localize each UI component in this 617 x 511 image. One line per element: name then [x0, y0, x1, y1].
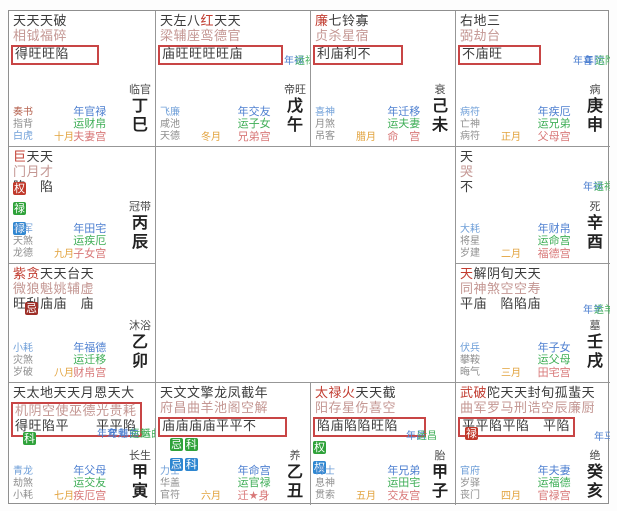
palace-cell-ji-wei[interactable]: 廉七铃寡贞杀星宿利庙利不喜神月煞吊客腊月年迁移运夫妻命 宫衰己未: [311, 11, 456, 147]
highlight-box: 得旺旺陷: [11, 45, 99, 65]
stage-label: 养: [282, 449, 308, 462]
palace-label: 官禄宫: [538, 490, 571, 503]
brightness-row: 不庙旺: [462, 47, 503, 62]
star-char: 天: [40, 150, 54, 165]
star-char: 月: [81, 386, 95, 401]
stage-label: 死: [582, 200, 608, 213]
transform-badge-row: 禄: [13, 197, 31, 217]
transform-badge-row: 禄: [465, 422, 480, 442]
star-char: 三: [487, 14, 501, 29]
star-char: 禄: [329, 386, 343, 401]
star-char: 蜚: [568, 386, 582, 401]
branch-char: 乙: [127, 332, 153, 351]
star-char: 天: [27, 14, 41, 29]
star-char: 右: [460, 14, 474, 29]
star-char: 天: [54, 386, 68, 401]
gods-list: 将军天煞龙德: [13, 224, 33, 260]
branch-char: 巳: [127, 115, 153, 134]
star-char: 太: [315, 386, 329, 401]
god-label: 岁破: [13, 367, 33, 379]
branch-char: 癸: [582, 462, 608, 481]
center-blank-area: [156, 147, 456, 383]
month-label: 腊月: [356, 128, 376, 143]
month-label: 十月: [54, 128, 74, 143]
year-marker: 年鸾: [97, 430, 108, 441]
year-marker: 年喜: [573, 57, 584, 68]
palace-cell-xin-you[interactable]: 天哭不年禄运禄大耗将星岁建二月年财帛运命宫福德宫死辛酉: [456, 147, 610, 264]
brightness-row: 得旺旺陷: [15, 47, 69, 62]
branch-char: 未: [427, 115, 453, 134]
year-marker: 年禄: [284, 57, 295, 68]
month-label: 七月: [54, 487, 74, 502]
star-char: 天: [40, 14, 54, 29]
palace-label: 命 宫: [387, 131, 420, 144]
star-char: 天: [13, 386, 27, 401]
star-char: 地: [474, 14, 488, 29]
palace-cell-bing-chen[interactable]: 巨天天门月才陷 陷权禄禄将军天煞龙德九月年田宅运疾厄子女宫冠带丙辰: [9, 147, 156, 264]
branch-char: 乙: [282, 462, 308, 481]
star-char: 天: [369, 386, 383, 401]
palace-cell-wu-wu[interactable]: 天左八红天天梁辅座鸾德官庙旺旺旺旺庙年禄运禄飞廉咸池天德冬月年交友运子女兄弟宫帝…: [156, 11, 311, 147]
gods-list: 伏兵攀鞍晦气: [460, 343, 480, 379]
gods-list: 青龙劫煞小耗: [13, 466, 33, 502]
transform-badge: 权: [13, 182, 26, 195]
star-names-top: 天左八红天天: [160, 14, 310, 29]
palace-label: 迁★身: [238, 490, 271, 503]
palace-labels: 年父母运交友疾厄宫: [73, 465, 106, 503]
god-label: 息神: [315, 478, 335, 490]
palace-label: 运交友: [73, 477, 106, 490]
branch-char: 酉: [582, 232, 608, 251]
star-char: 左: [174, 14, 188, 29]
star-names-top: 武破陀天天封旬孤蜚天: [460, 386, 610, 401]
year-marker: 年马: [594, 433, 605, 444]
stage-label: 冠带: [127, 200, 153, 213]
star-char: 天: [228, 14, 242, 29]
star-char: 天: [514, 386, 528, 401]
god-label: 病符: [460, 107, 480, 119]
star-char: 八: [187, 14, 201, 29]
star-char: 天: [13, 14, 27, 29]
god-label: 大耗: [460, 224, 480, 236]
branch-char: 卯: [127, 351, 153, 370]
star-char: 天: [160, 14, 174, 29]
palace-label: 田宅宫: [538, 367, 571, 380]
star-char: 旬: [501, 267, 515, 282]
god-label: 白虎: [13, 131, 33, 143]
month-label: 三月: [501, 364, 521, 379]
star-char: 阴: [487, 267, 501, 282]
star-names-bottom: 同神煞空空寿: [460, 282, 610, 297]
palace-label: 父母宫: [538, 131, 571, 144]
star-char: 天: [108, 386, 122, 401]
transform-badge: 忌: [170, 438, 183, 451]
stage-branch-block: 帝旺戊午: [282, 83, 308, 134]
star-names-bottom: 弼劫台: [460, 29, 610, 44]
star-char: 恩: [94, 386, 108, 401]
god-label: 力士: [160, 466, 180, 478]
god-label: 贯索: [315, 490, 335, 502]
star-char: 截: [383, 386, 397, 401]
branch-char: 申: [582, 115, 608, 134]
god-label: 博士: [315, 466, 335, 478]
star-names-top: 天文文擎龙凤截年: [160, 386, 310, 401]
god-label: 晦气: [460, 367, 480, 379]
year-marker: 运陀: [595, 57, 606, 68]
star-names-bottom: 贞杀星宿: [315, 29, 455, 44]
palace-label: 运兄弟: [538, 118, 571, 131]
transform-badge-row: 权: [13, 177, 31, 197]
year-marker: 年禄: [583, 183, 594, 194]
transform-badge: 科: [23, 432, 36, 445]
branch-char: 辛: [582, 213, 608, 232]
palace-cell-gui-hai[interactable]: 武破陀天天封旬孤蜚天曲军罗马刑诰空辰廉厨平平陷平陷 平陷禄年马官府岁驿丧门四月年…: [456, 383, 610, 505]
transform-badge: 科: [185, 458, 198, 471]
branch-char: 丁: [127, 96, 153, 115]
star-names-bottom: 微狼魁姚辅虚: [13, 282, 155, 297]
star-names-top: 天天天破: [13, 14, 155, 29]
transform-badge: 禄: [13, 202, 26, 215]
transform-badge: 忌: [25, 302, 38, 315]
star-names-top: 紫贪天天台天: [13, 267, 155, 282]
star-names-bottom: 阳存星伤喜空: [315, 401, 455, 416]
star-char: 擎: [201, 386, 215, 401]
star-char: 铃: [342, 14, 356, 29]
stage-branch-block: 冠带丙辰: [127, 200, 153, 251]
branch-char: 戌: [582, 351, 608, 370]
brightness-row: 陷 陷: [13, 180, 155, 195]
star-char: 天: [81, 267, 95, 282]
gods-list: 大耗将星岁建: [460, 224, 480, 260]
palace-labels: 年兄弟运田宅交友宫: [387, 465, 420, 503]
star-block: 廉七铃寡贞杀星宿利庙利不: [311, 11, 455, 65]
star-char: 太: [27, 386, 41, 401]
god-label: 病符: [460, 131, 480, 143]
god-label: 官府: [460, 466, 480, 478]
transform-badge-row: 科: [23, 427, 38, 447]
god-label: 丧门: [460, 490, 480, 502]
star-names-bottom: 门月才: [13, 165, 155, 180]
palace-labels: 年子女运父母田宅宫: [538, 342, 571, 380]
palace-label: 运子女: [238, 118, 271, 131]
stage-branch-block: 养乙丑: [282, 449, 308, 500]
star-char: 文: [187, 386, 201, 401]
year-marker: 运昌: [417, 432, 428, 443]
transform-badge: 科: [185, 438, 198, 451]
star-names-bottom: 相钺福碎: [13, 29, 155, 44]
star-char: 年: [255, 386, 269, 401]
god-label: 飞廉: [160, 107, 180, 119]
palace-labels: 年官禄运财帛夫妻宫: [73, 106, 106, 144]
star-char: 破: [474, 386, 488, 401]
palace-label: 兄弟宫: [238, 131, 271, 144]
palace-cell-geng-shen[interactable]: 右地三弼劫台不庙旺年喜年陀运陀病符亡神病符正月年疾厄运兄弟父母宫病庚申: [456, 11, 610, 147]
star-char: 武: [460, 386, 474, 401]
stage-label: 长生: [127, 449, 153, 462]
star-char: 天: [460, 150, 474, 165]
star-char: 凤: [228, 386, 242, 401]
brightness-row: 庙庙庙庙平平不: [162, 419, 257, 434]
month-label: 冬月: [201, 128, 221, 143]
ziwei-doushu-chart-page: { "colors": { "highlight_box_red": "#c84…: [0, 0, 617, 511]
stage-label: 衰: [427, 83, 453, 96]
god-label: 青龙: [13, 466, 33, 478]
god-label: 吊客: [315, 131, 335, 143]
year-markers: 年喜年陀运陀: [573, 57, 606, 76]
god-label: 天德: [160, 131, 180, 143]
star-char: 火: [342, 386, 356, 401]
branch-char: 丑: [282, 481, 308, 500]
star-char: 天: [501, 386, 515, 401]
stage-label: 临官: [127, 83, 153, 96]
god-label: 咸池: [160, 119, 180, 131]
transform-badge: 禄: [465, 427, 478, 440]
star-char: 天: [514, 267, 528, 282]
palace-label: 运疾厄: [73, 235, 106, 248]
god-label: 龙德: [13, 248, 33, 260]
gods-list: 官府岁驿丧门: [460, 466, 480, 502]
stage-branch-block: 病庚申: [582, 83, 608, 134]
stage-branch-block: 胎甲子: [427, 449, 453, 500]
palace-label: 财帛宫: [73, 367, 106, 380]
branch-char: 戊: [282, 96, 308, 115]
month-label: 六月: [201, 487, 221, 502]
branch-char: 亥: [582, 481, 608, 500]
god-label: 指背: [13, 119, 33, 131]
year-marker: 运禄: [594, 183, 605, 194]
star-char: 截: [241, 386, 255, 401]
year-marker: 年陀: [584, 57, 595, 68]
star-names-top: 太禄火天天截: [315, 386, 455, 401]
palace-label: 运财帛: [73, 118, 106, 131]
star-char: 天: [582, 386, 596, 401]
star-names-top: 廉七铃寡: [315, 14, 455, 29]
star-block: 天文文擎龙凤截年府昌曲羊池阁空解庙庙庙庙平平不: [156, 383, 310, 437]
palace-labels: 年田宅运疾厄子女宫: [73, 223, 106, 261]
stage-branch-block: 临官丁巳: [127, 83, 153, 134]
transform-badges: 科: [23, 427, 38, 447]
star-char: 台: [67, 267, 81, 282]
year-marker: 年魁: [108, 430, 119, 441]
branch-char: 丙: [127, 213, 153, 232]
transform-badges: 忌: [25, 297, 40, 317]
star-char: 天: [528, 267, 542, 282]
star-block: 天天天破相钺福碎得旺旺陷: [9, 11, 155, 65]
god-label: 岁建: [460, 248, 480, 260]
star-char: 孤: [555, 386, 569, 401]
palace-cell-jia-yin[interactable]: 天太地天天月恩天大机阴空使巫德光贵耗得旺陷平 平平陷科年鸾年魁年曲运魁运曲青龙劫…: [9, 383, 156, 505]
palace-label: 运田宅: [387, 477, 420, 490]
god-label: 小耗: [13, 343, 33, 355]
palace-label: 运迁移: [73, 354, 106, 367]
branch-char: 甲: [427, 462, 453, 481]
stage-label: 帝旺: [282, 83, 308, 96]
palace-labels: 年夫妻运福德官禄宫: [538, 465, 571, 503]
star-names-top: 天: [460, 150, 610, 165]
ziwei-chart-grid: 天天天破相钺福碎得旺旺陷奏书指背白虎十月年官禄运财帛夫妻宫临官丁巳 天左八红天天…: [8, 10, 609, 504]
year-markers: 年鸾年魁年曲运魁运曲: [97, 430, 152, 449]
stage-branch-block: 死辛酉: [582, 200, 608, 251]
stage-label: 墓: [582, 319, 608, 332]
star-names-top: 天太地天天月恩天大: [13, 386, 155, 401]
star-char: 解: [474, 267, 488, 282]
palace-cell-jia-zi[interactable]: 太禄火天天截阳存星伤喜空陷庙陷陷旺陷权权年昌运昌博士息神贯索五月年兄弟运田宅交友…: [311, 383, 456, 505]
month-label: 正月: [501, 128, 521, 143]
palace-label: 运夫妻: [387, 118, 420, 131]
star-block: 太禄火天天截阳存星伤喜空陷庙陷陷旺陷: [311, 383, 455, 437]
transform-badge-row: 权: [313, 436, 331, 456]
star-names-top: 天解阴旬天天: [460, 267, 610, 282]
month-label: 二月: [501, 245, 521, 260]
god-label: 伏兵: [460, 343, 480, 355]
year-markers: 年禄运禄: [284, 57, 306, 76]
star-char: 龙: [214, 386, 228, 401]
star-char: 封: [528, 386, 542, 401]
god-label: 将星: [460, 236, 480, 248]
brightness-row: 利庙利不: [317, 47, 371, 62]
gods-list: 力士华盖官符: [160, 466, 180, 502]
palace-label: 疾厄宫: [73, 490, 106, 503]
star-char: 天: [460, 267, 474, 282]
gods-list: 喜神月煞吊客: [315, 107, 335, 143]
gods-list: 博士息神贯索: [315, 466, 335, 502]
god-label: 天煞: [13, 236, 33, 248]
stage-label: 胎: [427, 449, 453, 462]
palace-cell-ren-xu[interactable]: 天解阴旬天天同神煞空空寿平庙 陷陷庙年羊运羊伏兵攀鞍晦气三月年子女运父母田宅宫墓…: [456, 264, 610, 383]
branch-char: 辰: [127, 232, 153, 251]
god-label: 亡神: [460, 119, 480, 131]
month-label: 五月: [356, 487, 376, 502]
star-char: 旬: [541, 386, 555, 401]
year-marker: 运曲: [141, 430, 152, 441]
god-label: 小耗: [13, 490, 33, 502]
star-char: 天: [160, 386, 174, 401]
star-char: 大: [121, 386, 135, 401]
branch-char: 甲: [127, 462, 153, 481]
month-label: 四月: [501, 487, 521, 502]
palace-labels: 年财帛运命宫福德宫: [538, 223, 571, 261]
star-names-bottom: 机阴空使巫德光贵耗: [15, 404, 137, 419]
god-label: 华盖: [160, 478, 180, 490]
star-names-bottom: 哭: [460, 165, 610, 180]
transform-badges: 禄: [465, 422, 480, 442]
palace-labels: 年疾厄运兄弟父母宫: [538, 106, 571, 144]
branch-char: 午: [282, 115, 308, 134]
god-label: 月煞: [315, 119, 335, 131]
stage-branch-block: 绝癸亥: [582, 449, 608, 500]
palace-label: 交友宫: [387, 490, 420, 503]
branch-char: 己: [427, 96, 453, 115]
year-marker: 运羊: [594, 306, 605, 317]
star-char: 七: [329, 14, 343, 29]
stage-branch-block: 墓壬戌: [582, 319, 608, 370]
star-char: 天: [54, 267, 68, 282]
star-names-bottom: 梁辅座鸾德官: [160, 29, 310, 44]
star-char: 巨: [13, 150, 27, 165]
palace-label: 运福德: [538, 477, 571, 490]
palace-label: 夫妻宫: [73, 131, 106, 144]
year-markers: 年昌运昌: [406, 432, 428, 451]
gods-list: 病符亡神病符: [460, 107, 480, 143]
year-marker: 运魁: [130, 430, 141, 441]
palace-labels: 年迁移运夫妻命 宫: [387, 106, 420, 144]
brightness-row: 庙旺旺旺旺庙: [162, 47, 243, 62]
highlight-box: 利庙利不: [313, 45, 403, 65]
star-char: 廉: [315, 14, 329, 29]
god-label: 岁驿: [460, 478, 480, 490]
highlight-box: 庙旺旺旺旺庙: [158, 45, 283, 65]
palace-labels: 年命宫运官禄迁★身: [238, 465, 271, 503]
highlight-box: 不庙旺: [458, 45, 541, 65]
palace-label: 运父母: [538, 354, 571, 367]
god-label: 喜神: [315, 107, 335, 119]
star-char: 天: [40, 267, 54, 282]
stage-branch-block: 沐浴乙卯: [127, 319, 153, 370]
branch-char: 寅: [127, 481, 153, 500]
stage-label: 病: [582, 83, 608, 96]
palace-cell-yi-mao[interactable]: 紫贪天天台天微狼魁姚辅虚旺利庙庙 庙忌小耗灾煞岁破八月年福德运迁移财帛宫沐浴乙卯: [9, 264, 156, 383]
star-char: 贪: [27, 267, 41, 282]
palace-label: 运命宫: [538, 235, 571, 248]
month-label: 八月: [54, 364, 74, 379]
branch-char: 庚: [582, 96, 608, 115]
star-char: 陀: [487, 386, 501, 401]
year-marker: 年曲: [119, 430, 130, 441]
palace-cell-yi-chou[interactable]: 天文文擎龙凤截年府昌曲羊池阁空解庙庙庙庙平平不忌科忌科力士华盖官符六月年命宫运官…: [156, 383, 311, 505]
year-marker: 运禄: [295, 57, 306, 68]
palace-label: 福德宫: [538, 248, 571, 261]
stage-branch-block: 衰己未: [427, 83, 453, 134]
star-char: 寡: [356, 14, 370, 29]
star-names-top: 巨天天: [13, 150, 155, 165]
star-char: 破: [54, 14, 68, 29]
star-char: 天: [214, 14, 228, 29]
palace-labels: 年福德运迁移财帛宫: [73, 342, 106, 380]
god-label: 官符: [160, 490, 180, 502]
transform-badge-row: 忌科: [170, 433, 206, 453]
branch-char: 壬: [582, 332, 608, 351]
star-char: 天: [356, 386, 370, 401]
palace-cell-ding-si[interactable]: 天天天破相钺福碎得旺旺陷奏书指背白虎十月年官禄运财帛夫妻宫临官丁巳: [9, 11, 156, 147]
star-names-top: 右地三: [460, 14, 610, 29]
god-label: 奏书: [13, 107, 33, 119]
god-label: 攀鞍: [460, 355, 480, 367]
branch-char: 子: [427, 481, 453, 500]
star-char: 紫: [13, 267, 27, 282]
god-label: 劫煞: [13, 478, 33, 490]
star-char: 文: [174, 386, 188, 401]
god-label: 灾煞: [13, 355, 33, 367]
palace-label: 子女宫: [73, 248, 106, 261]
star-char: 天: [67, 386, 81, 401]
month-label: 九月: [54, 245, 74, 260]
palace-labels: 年交友运子女兄弟宫: [238, 106, 271, 144]
palace-label: 运官禄: [238, 477, 271, 490]
gods-list: 奏书指背白虎: [13, 107, 33, 143]
stage-branch-block: 长生甲寅: [127, 449, 153, 500]
star-char: 天: [27, 150, 41, 165]
stage-label: 沐浴: [127, 319, 153, 332]
transform-badge: 权: [313, 441, 326, 454]
brightness-row: 陷庙陷陷旺陷: [317, 419, 398, 434]
god-label: 将军: [13, 224, 33, 236]
transform-badge-row: 忌: [25, 297, 40, 317]
star-names-bottom: 府昌曲羊池阁空解: [160, 401, 310, 416]
star-char: 地: [40, 386, 54, 401]
gods-list: 飞廉咸池天德: [160, 107, 180, 143]
star-char: 红: [201, 14, 215, 29]
year-marker: 年昌: [406, 432, 417, 443]
